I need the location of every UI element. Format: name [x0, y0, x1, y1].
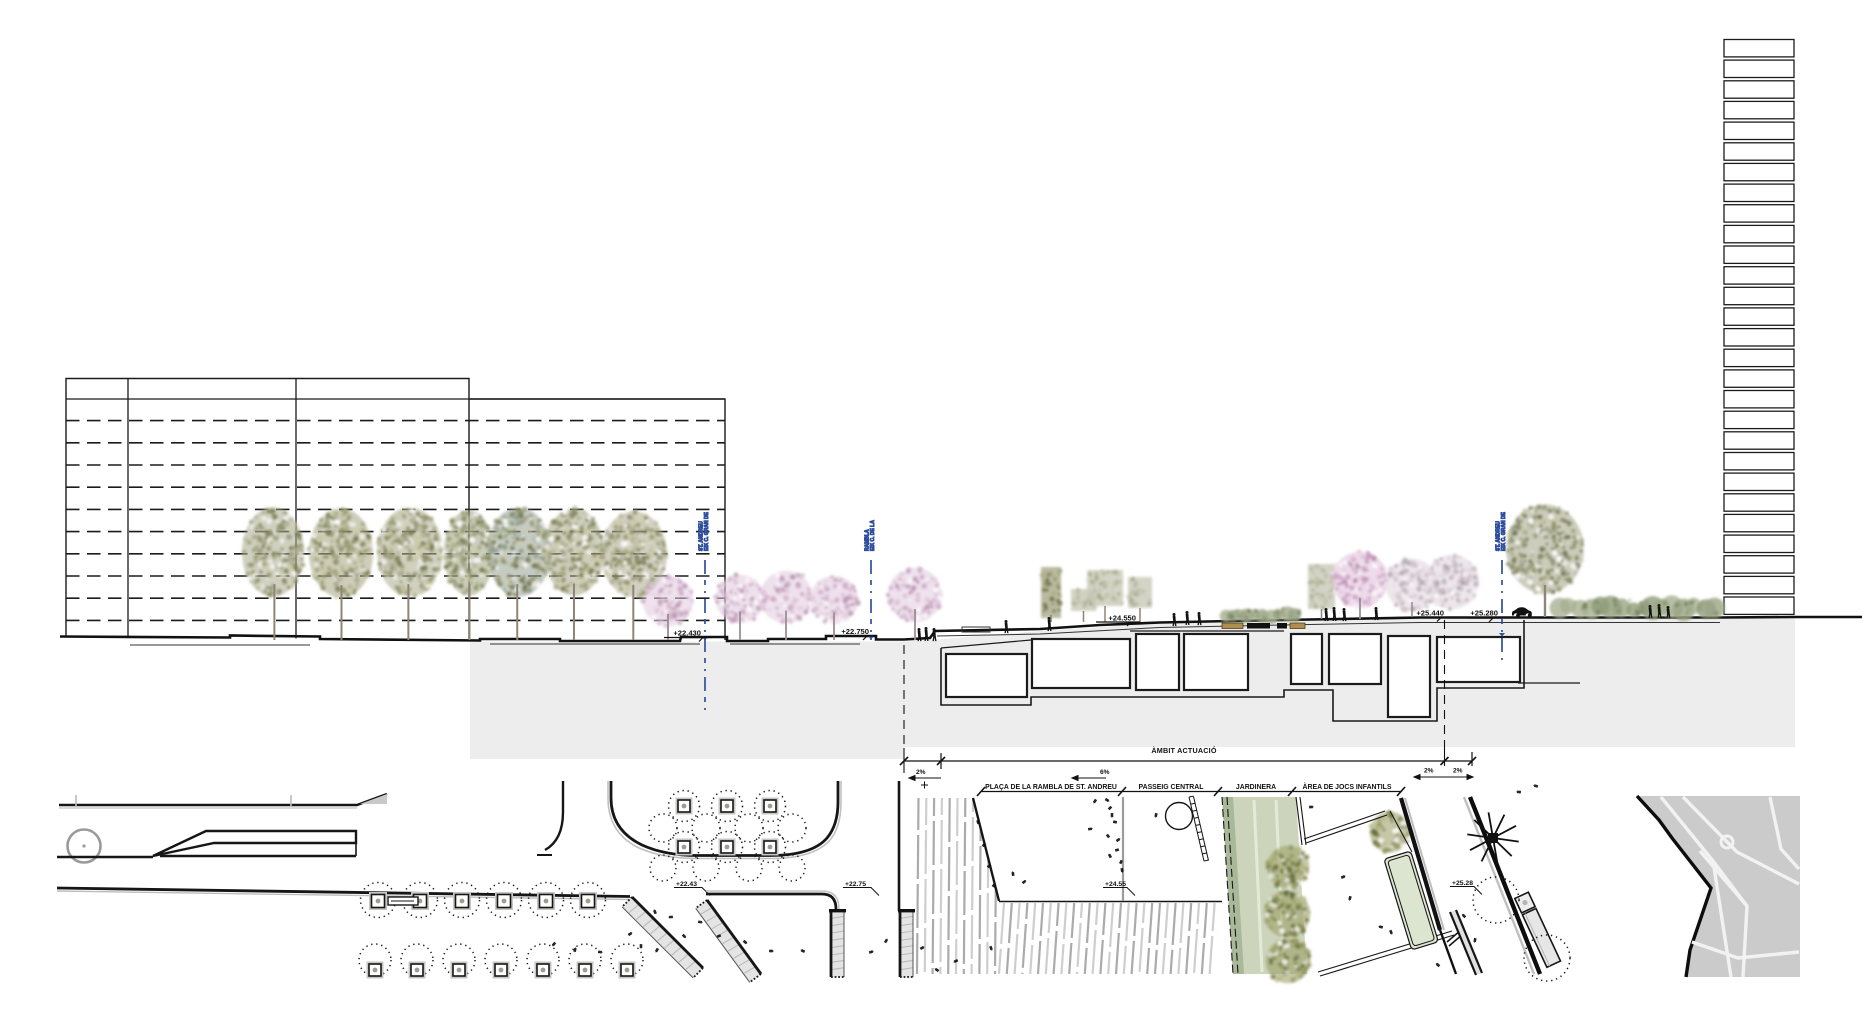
svg-text:EIX C. DE LA: EIX C. DE LA [870, 520, 876, 551]
svg-text:2%: 2% [1453, 768, 1463, 775]
svg-text:ST. ANDREU: ST. ANDREU [699, 521, 705, 551]
svg-text:EIX C. GRAN DE: EIX C. GRAN DE [704, 511, 710, 551]
svg-text:ST. ANDREU: ST. ANDREU [1496, 521, 1502, 551]
svg-text:EIX C. GRAN DE: EIX C. GRAN DE [1501, 511, 1507, 551]
svg-text:6%: 6% [1100, 769, 1110, 776]
svg-text:RAMBLA: RAMBLA [865, 529, 871, 551]
svg-text:PLAÇA DE LA RAMBLA DE ST. ANDR: PLAÇA DE LA RAMBLA DE ST. ANDREU [985, 784, 1117, 791]
svg-text:PASSEIG CENTRAL: PASSEIG CENTRAL [1139, 784, 1204, 791]
svg-text:+22.430: +22.430 [673, 629, 701, 638]
svg-text:+22.43: +22.43 [676, 881, 697, 888]
svg-text:+25.280: +25.280 [1470, 609, 1498, 618]
svg-text:+25.440: +25.440 [1416, 609, 1444, 618]
svg-text:+25.28: +25.28 [1452, 880, 1473, 887]
svg-text:ÀREA DE JOCS INFANTILS: ÀREA DE JOCS INFANTILS [1303, 782, 1392, 791]
svg-text:+24.550: +24.550 [1108, 614, 1136, 623]
svg-text:2%: 2% [1424, 768, 1434, 775]
svg-text:JARDINERA: JARDINERA [1236, 784, 1276, 791]
svg-text:+24.55: +24.55 [1105, 881, 1126, 888]
svg-text:2%: 2% [916, 769, 926, 776]
svg-text:+22.75: +22.75 [845, 881, 866, 888]
svg-text:+22.750: +22.750 [841, 627, 869, 636]
svg-text:ÀMBIT ACTUACIÓ: ÀMBIT ACTUACIÓ [1151, 746, 1216, 755]
